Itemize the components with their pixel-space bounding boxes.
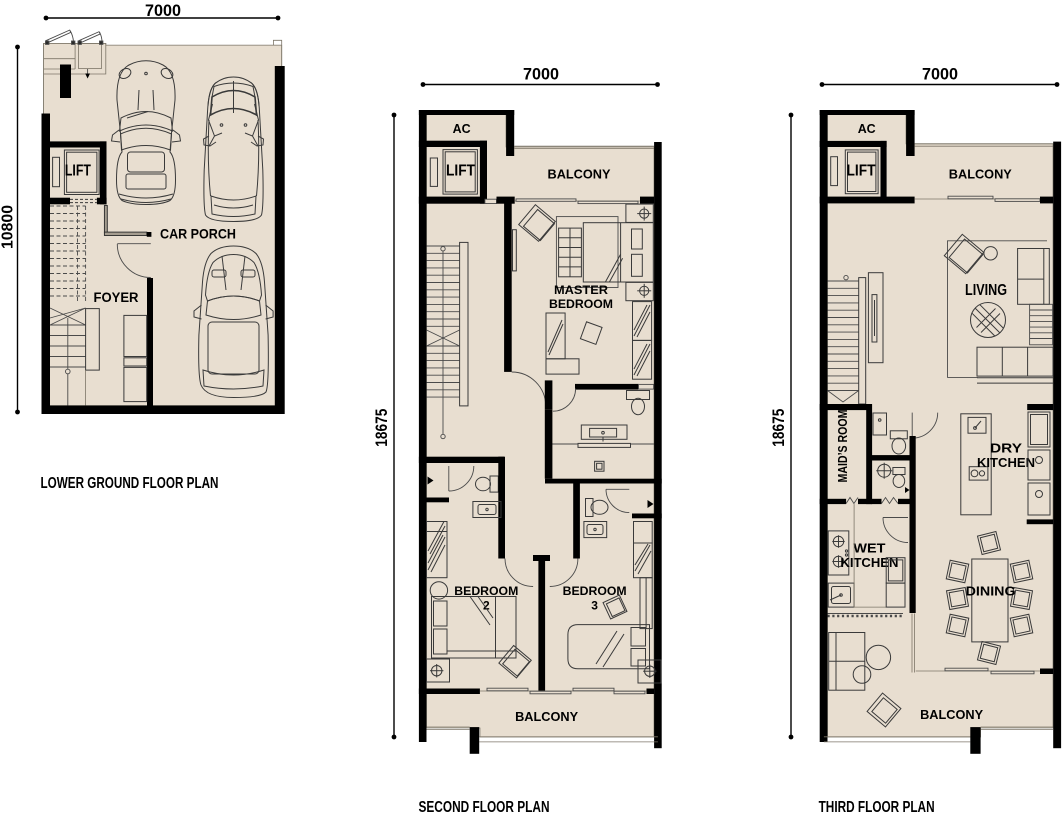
svg-text:7000: 7000 xyxy=(922,66,958,84)
svg-text:BALCONY: BALCONY xyxy=(515,710,579,724)
svg-text:MASTER: MASTER xyxy=(554,283,608,297)
svg-text:LOWER GROUND FLOOR PLAN: LOWER GROUND FLOOR PLAN xyxy=(41,475,219,492)
svg-text:10800: 10800 xyxy=(0,205,17,249)
svg-text:7000: 7000 xyxy=(523,66,559,84)
svg-text:DINING: DINING xyxy=(966,585,1016,599)
svg-text:LIFT: LIFT xyxy=(65,162,91,179)
svg-text:KITCHEN: KITCHEN xyxy=(977,456,1035,470)
svg-text:FOYER: FOYER xyxy=(94,290,139,305)
svg-text:BALCONY: BALCONY xyxy=(949,168,1013,182)
svg-text:DRY: DRY xyxy=(990,442,1023,456)
svg-text:AC: AC xyxy=(453,122,471,136)
svg-text:CAR PORCH: CAR PORCH xyxy=(160,226,236,242)
svg-text:MAID’S ROOM: MAID’S ROOM xyxy=(835,410,850,483)
svg-text:BALCONY: BALCONY xyxy=(920,708,984,722)
svg-text:3: 3 xyxy=(591,599,598,613)
svg-text:THIRD FLOOR PLAN: THIRD FLOOR PLAN xyxy=(819,799,935,816)
svg-text:LIVING: LIVING xyxy=(965,282,1007,299)
svg-text:LIFT: LIFT xyxy=(446,163,475,180)
svg-text:BEDROOM: BEDROOM xyxy=(454,584,518,598)
svg-text:LIFT: LIFT xyxy=(847,163,876,180)
svg-text:WET: WET xyxy=(853,542,885,556)
svg-text:18675: 18675 xyxy=(372,409,391,447)
svg-text:18675: 18675 xyxy=(769,409,788,447)
svg-text:BEDROOM: BEDROOM xyxy=(549,297,613,311)
svg-text:SECOND FLOOR PLAN: SECOND FLOOR PLAN xyxy=(419,799,550,816)
svg-text:AC: AC xyxy=(858,122,876,136)
svg-text:BALCONY: BALCONY xyxy=(548,168,612,182)
